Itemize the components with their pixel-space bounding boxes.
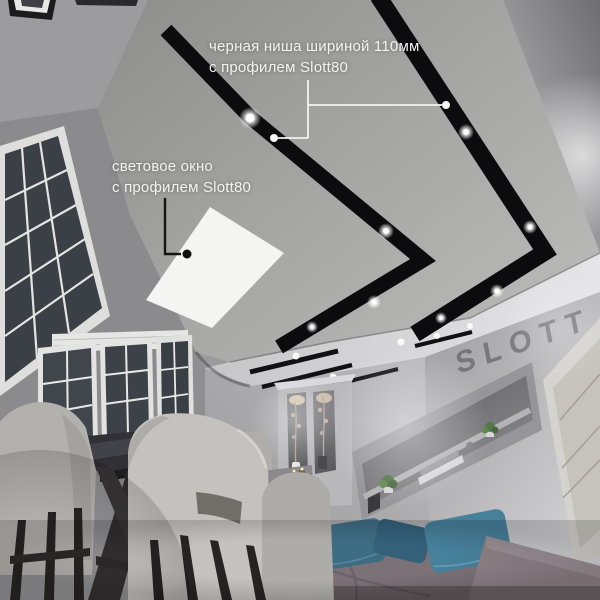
annotation-light-window: световое окно с профилем Slott80 <box>112 156 251 198</box>
back-wall-glow <box>328 348 488 508</box>
annotation-text-line: с профилем Slott80 <box>209 57 419 78</box>
leader-dot-dark <box>183 250 192 259</box>
leader-dot <box>442 101 450 109</box>
scene-svg: SLOTT <box>0 0 600 600</box>
annotation-text-line: черная ниша шириной 110мм <box>209 36 419 57</box>
interior-render: SLOTT <box>0 0 600 600</box>
annotation-text-line: световое окно <box>112 156 251 177</box>
annotation-text-line: с профилем Slott80 <box>112 177 251 198</box>
leader-dot <box>270 134 278 142</box>
annotation-black-niche: черная ниша шириной 110мм с профилем Slo… <box>209 36 419 78</box>
